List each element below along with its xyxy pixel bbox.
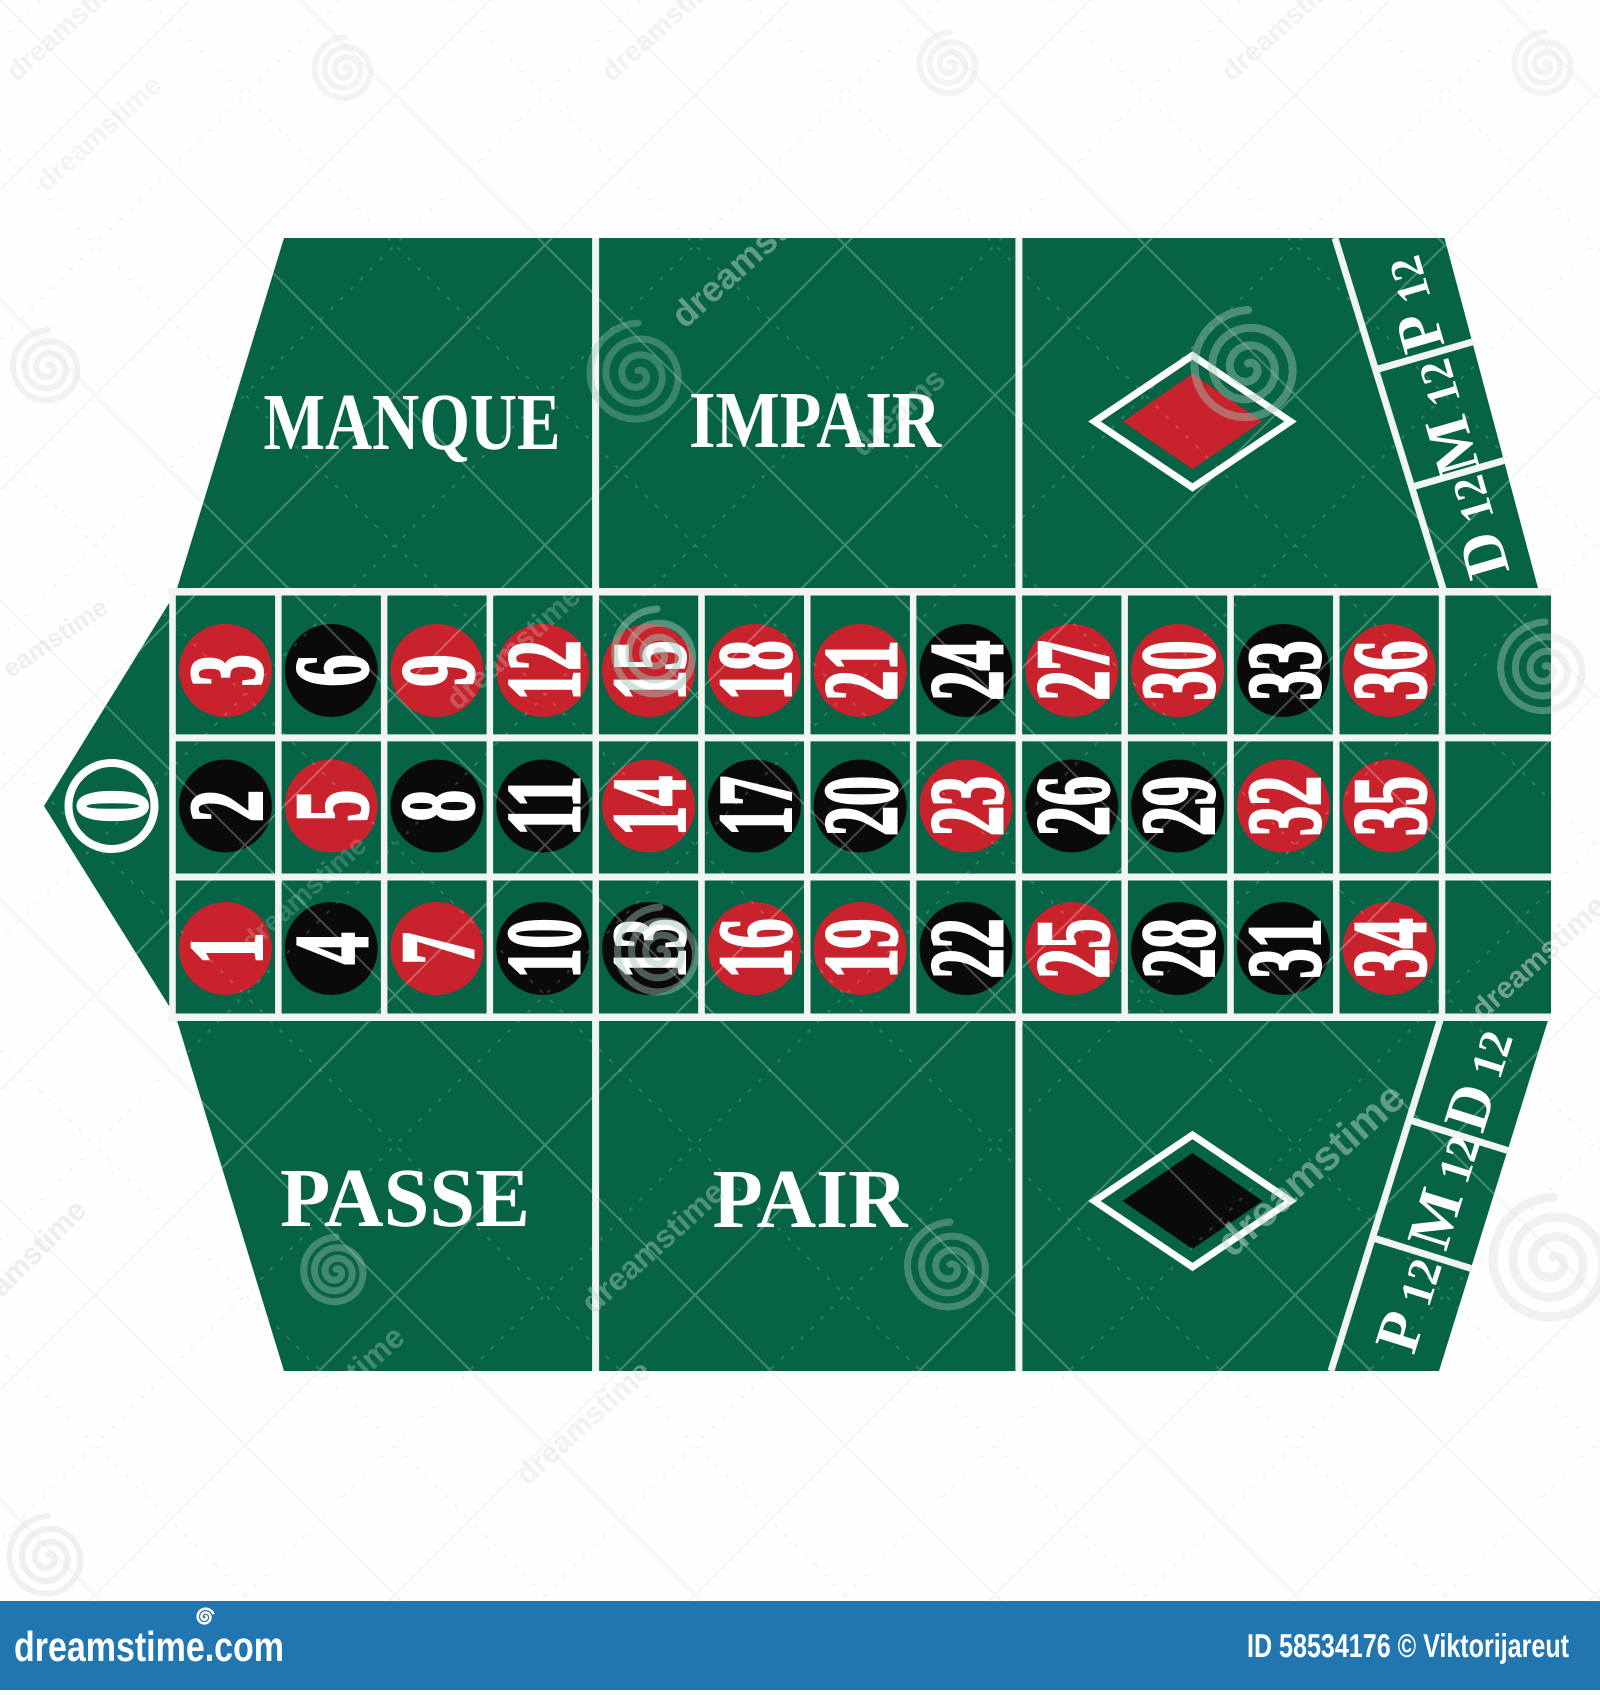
svg-text:14: 14 [591, 776, 708, 836]
svg-text:22: 22 [908, 919, 1025, 979]
svg-text:21: 21 [802, 641, 919, 701]
svg-text:25: 25 [1014, 919, 1131, 979]
svg-text:23: 23 [908, 776, 1025, 836]
svg-text:dreamstime.com: dreamstime.com [14, 1623, 284, 1670]
svg-text:29: 29 [1120, 776, 1237, 836]
svg-text:16: 16 [696, 919, 813, 979]
svg-text:8: 8 [379, 790, 496, 822]
svg-text:35: 35 [1331, 776, 1448, 836]
svg-text:4: 4 [273, 933, 390, 965]
svg-text:32: 32 [1225, 776, 1342, 836]
svg-text:33: 33 [1225, 641, 1342, 701]
svg-text:2: 2 [167, 790, 284, 822]
svg-text:28: 28 [1120, 919, 1237, 979]
svg-text:34: 34 [1331, 919, 1448, 979]
svg-text:30: 30 [1120, 641, 1237, 701]
svg-text:27: 27 [1014, 641, 1131, 701]
svg-text:MANQUE: MANQUE [264, 377, 561, 467]
svg-text:24: 24 [908, 641, 1025, 701]
svg-text:PAIR: PAIR [713, 1153, 909, 1246]
svg-text:36: 36 [1331, 641, 1448, 701]
svg-text:ID 58534176 © Viktorijareut: ID 58534176 © Viktorijareut [1247, 1627, 1569, 1664]
svg-text:10: 10 [485, 919, 602, 979]
svg-text:7: 7 [379, 933, 496, 965]
svg-text:26: 26 [1014, 776, 1131, 836]
svg-text:6: 6 [273, 655, 390, 687]
svg-text:18: 18 [696, 641, 813, 701]
svg-text:20: 20 [802, 776, 919, 836]
svg-text:31: 31 [1225, 919, 1342, 979]
svg-text:17: 17 [696, 776, 813, 836]
svg-text:3: 3 [167, 655, 284, 687]
svg-text:0: 0 [57, 790, 168, 822]
svg-text:19: 19 [802, 919, 919, 979]
svg-text:5: 5 [273, 790, 390, 822]
